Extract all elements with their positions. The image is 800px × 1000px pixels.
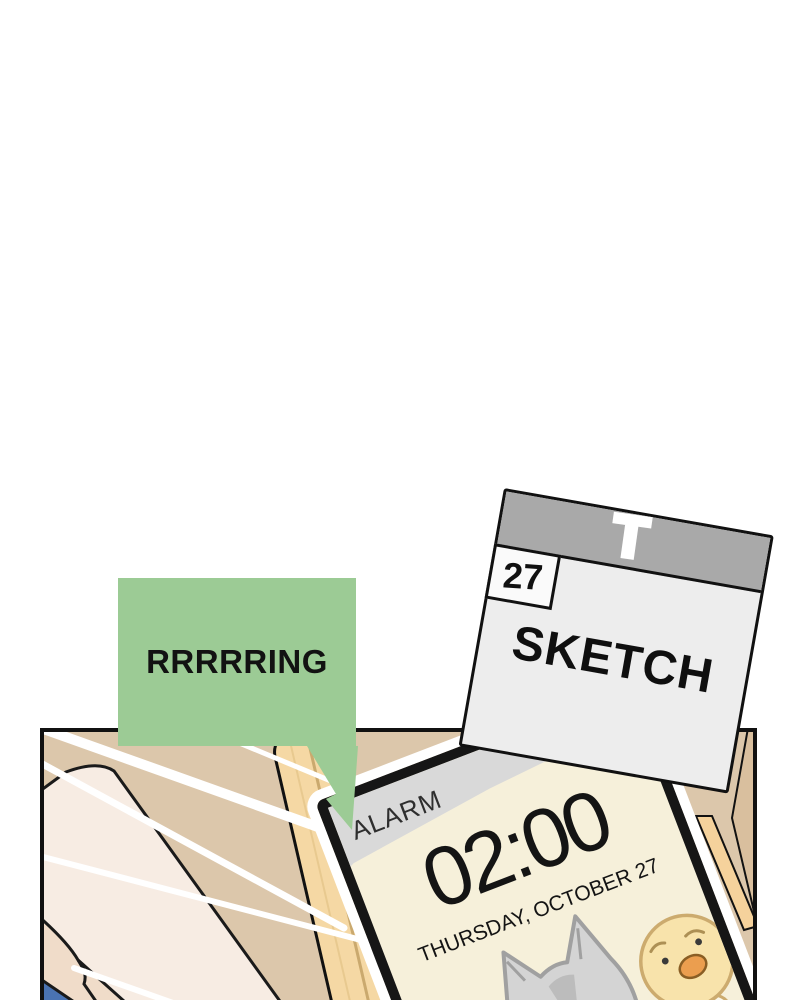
comic-page: ALARM 02:00 THURSDAY, OCTOBER 27	[0, 0, 800, 1000]
calendar-label: SKETCH	[476, 610, 749, 711]
speech-bubble-text: RRRRRING	[146, 643, 328, 681]
day-box: 27	[485, 543, 562, 610]
day-number: 27	[501, 554, 544, 599]
calendar-note: T 27 SKETCH	[459, 488, 774, 794]
speech-bubble: RRRRRING	[118, 578, 356, 746]
